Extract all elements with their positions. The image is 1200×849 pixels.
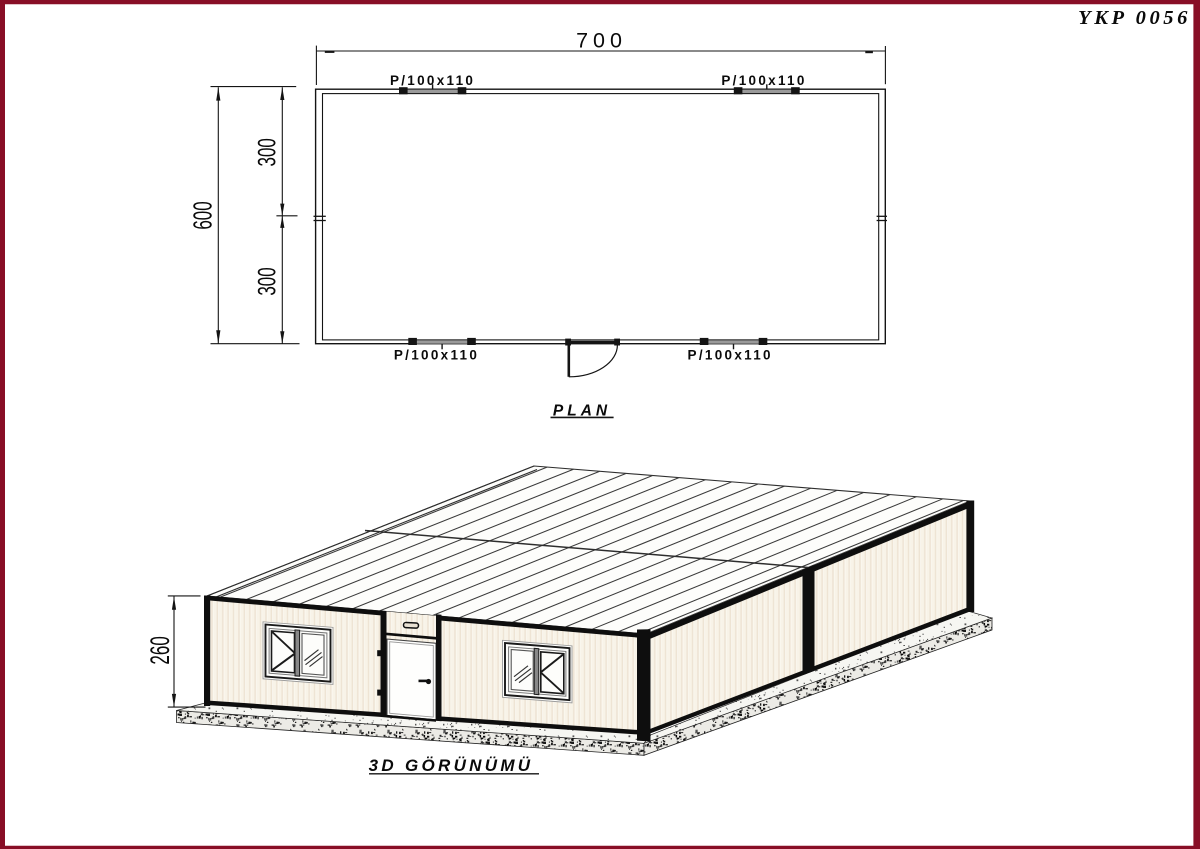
- svg-text:300: 300: [255, 138, 282, 166]
- svg-text:600: 600: [188, 201, 217, 229]
- svg-text:P/100x110: P/100x110: [394, 348, 479, 363]
- svg-text:YKP 0056: YKP 0056: [1078, 7, 1191, 29]
- svg-text:3D GÖRÜNÜMÜ: 3D GÖRÜNÜMÜ: [369, 756, 534, 775]
- svg-text:P/100x110: P/100x110: [721, 73, 806, 88]
- svg-text:700: 700: [576, 29, 627, 53]
- svg-text:260: 260: [144, 636, 175, 664]
- svg-text:P/100x110: P/100x110: [688, 348, 773, 363]
- svg-text:300: 300: [255, 267, 282, 295]
- svg-text:P/100x110: P/100x110: [390, 73, 475, 88]
